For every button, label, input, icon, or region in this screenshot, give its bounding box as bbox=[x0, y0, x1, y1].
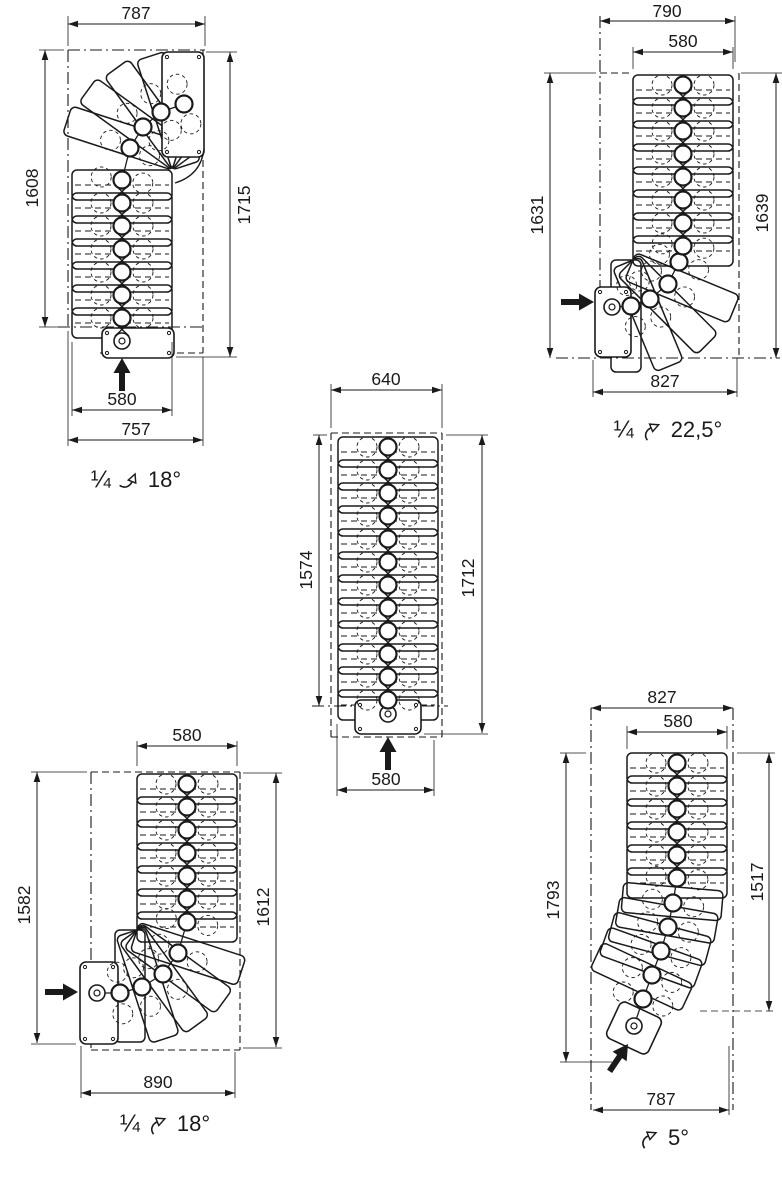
caption-angle: 22,5° bbox=[671, 417, 723, 443]
d4-dim-left: 1582 bbox=[13, 870, 35, 940]
d2-dim-top: 790 bbox=[632, 0, 702, 22]
d3-dim-top: 640 bbox=[351, 368, 421, 390]
d3-dim-bottom: 580 bbox=[351, 768, 421, 790]
d2-dim-bottom: 827 bbox=[630, 370, 700, 392]
caption-fraction: ¼ bbox=[614, 416, 634, 444]
d2-dim-width: 580 bbox=[648, 30, 718, 52]
stair-layout-sheet: 787 1608 1715 580 757 790 580 1631 1639 … bbox=[0, 0, 782, 1200]
stair-plan-drawings bbox=[0, 0, 782, 1200]
d5-dim-bottom: 787 bbox=[626, 1088, 696, 1110]
diagram-curved-flight-5 bbox=[560, 705, 775, 1115]
entry-arrow-icon bbox=[45, 984, 78, 1001]
entry-arrow-icon bbox=[114, 358, 131, 391]
d1-dim-bottom: 757 bbox=[101, 418, 171, 440]
diagram-quarter-turn-top-18 bbox=[39, 16, 237, 446]
d2-dim-left: 1631 bbox=[526, 180, 548, 250]
caption-quarter-turn-18-bottom: ¼ 18° bbox=[120, 1110, 210, 1138]
caption-curve-5: 5° bbox=[631, 1125, 689, 1151]
d5-dim-width: 580 bbox=[643, 710, 713, 732]
d4-dim-top: 580 bbox=[152, 724, 222, 746]
d5-dim-top: 827 bbox=[627, 686, 697, 708]
d1-dim-left: 1608 bbox=[21, 153, 43, 223]
caption-quarter-turn-22-5: ¼ 22,5° bbox=[614, 416, 723, 444]
caption-fraction: ¼ bbox=[91, 466, 111, 494]
d5-dim-left: 1793 bbox=[542, 865, 564, 935]
d3-dim-left: 1574 bbox=[295, 535, 317, 605]
d4-dim-bottom: 890 bbox=[123, 1071, 193, 1093]
d3-dim-right: 1712 bbox=[457, 543, 479, 613]
caption-angle: 18° bbox=[177, 1111, 210, 1137]
caption-fraction: ¼ bbox=[120, 1110, 140, 1138]
d1-dim-top: 787 bbox=[101, 2, 171, 24]
quarter-turn-left-arrow-icon bbox=[147, 1113, 170, 1136]
turn-left-arrow-icon bbox=[638, 1127, 661, 1150]
d1-dim-right: 1715 bbox=[233, 170, 255, 240]
quarter-turn-left-arrow-icon bbox=[641, 419, 664, 442]
entry-arrow-icon bbox=[561, 294, 594, 311]
diagram-quarter-turn-bottom-18 bbox=[31, 741, 282, 1098]
caption-angle: 18° bbox=[148, 467, 181, 493]
d4-dim-right: 1612 bbox=[252, 872, 274, 942]
diagram-quarter-turn-bottom-22-5 bbox=[544, 16, 782, 397]
quarter-turn-right-arrow-icon bbox=[118, 469, 141, 492]
caption-angle: 5° bbox=[668, 1125, 689, 1151]
caption-quarter-turn-18-top: ¼ 18° bbox=[91, 466, 181, 494]
entry-arrow-icon bbox=[380, 737, 397, 770]
d1-dim-width: 580 bbox=[87, 388, 157, 410]
d2-dim-right: 1639 bbox=[751, 178, 773, 248]
d5-dim-right: 1517 bbox=[746, 847, 768, 917]
